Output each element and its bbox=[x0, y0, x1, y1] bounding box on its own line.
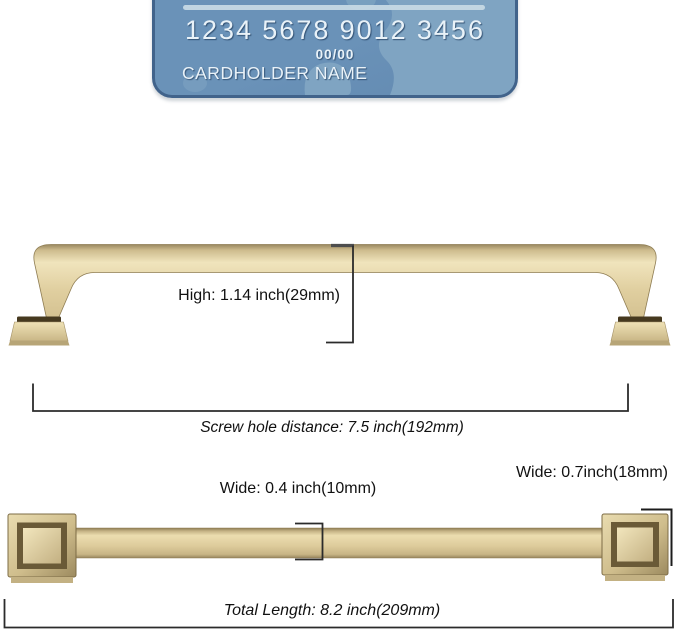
bar-width-label: Wide: 0.4 inch(10mm) bbox=[0, 480, 596, 498]
product-dimension-diagram: 1234 5678 9012 3456 00/00 CARDHOLDER NAM… bbox=[0, 0, 679, 632]
handle-bar-and-legs bbox=[34, 245, 656, 319]
handle-foot-right bbox=[611, 322, 669, 341]
handle-cap-right bbox=[602, 514, 668, 581]
handle-foot-left-lip bbox=[9, 341, 70, 346]
handle-drawings bbox=[0, 0, 679, 632]
handle-top-view bbox=[8, 514, 668, 583]
height-dimension-label: High: 1.14 inch(29mm) bbox=[0, 287, 340, 305]
handle-bar-top-view bbox=[72, 528, 614, 558]
cap-width-label: Wide: 0.7inch(18mm) bbox=[516, 464, 668, 482]
screw-distance-label: Screw hole distance: 7.5 inch(192mm) bbox=[0, 419, 664, 437]
handle-foot-right-lip bbox=[610, 341, 671, 346]
handle-foot-left bbox=[10, 322, 68, 341]
total-length-label: Total Length: 8.2 inch(209mm) bbox=[0, 602, 664, 620]
screw-distance-dimension-line bbox=[33, 384, 628, 412]
handle-cap-left bbox=[8, 514, 76, 583]
